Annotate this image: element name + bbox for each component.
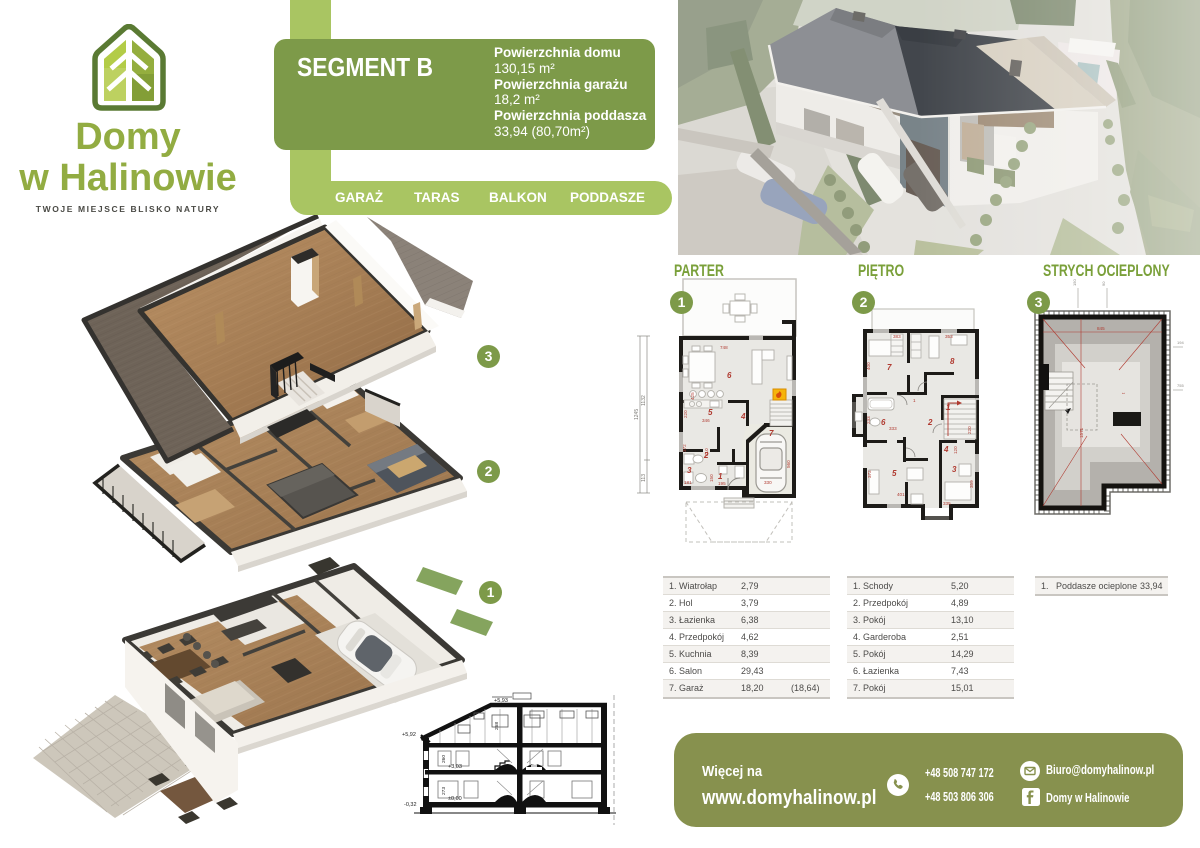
svg-text:1245: 1245 — [634, 409, 640, 420]
svg-text:260: 260 — [441, 755, 447, 763]
svg-text:748: 748 — [720, 345, 728, 350]
svg-text:330: 330 — [764, 480, 772, 485]
svg-text:150: 150 — [1072, 279, 1077, 286]
svg-text:150: 150 — [709, 474, 714, 482]
svg-text:1571: 1571 — [1079, 427, 1084, 438]
svg-text:273: 273 — [441, 787, 447, 795]
svg-text:346: 346 — [702, 418, 710, 423]
svg-text:+3,03: +3,03 — [448, 764, 462, 770]
svg-text:755: 755 — [1177, 383, 1184, 388]
svg-text:7: 7 — [769, 429, 774, 438]
svg-text:4: 4 — [740, 412, 746, 421]
svg-text:383: 383 — [893, 334, 901, 339]
svg-text:210: 210 — [704, 448, 709, 456]
svg-text:1: 1 — [946, 403, 951, 412]
svg-text:3: 3 — [952, 465, 957, 474]
svg-text:268: 268 — [494, 722, 500, 730]
svg-text:400: 400 — [866, 362, 871, 370]
svg-text:7: 7 — [887, 363, 892, 372]
svg-text:5: 5 — [708, 408, 713, 417]
svg-text:333: 333 — [889, 426, 897, 431]
svg-text:6: 6 — [727, 371, 732, 380]
svg-text:845: 845 — [1097, 326, 1105, 331]
svg-text:220: 220 — [967, 426, 972, 434]
svg-text:194: 194 — [1177, 340, 1184, 345]
svg-text:372: 372 — [867, 470, 872, 478]
svg-text:3: 3 — [687, 466, 692, 475]
svg-text:6: 6 — [881, 418, 886, 427]
svg-text:+5,93: +5,93 — [494, 698, 508, 704]
svg-text:+5,92: +5,92 — [402, 732, 416, 738]
svg-text:113: 113 — [641, 474, 647, 482]
svg-text:335: 335 — [943, 501, 951, 506]
svg-text:401: 401 — [897, 492, 905, 497]
svg-text:1: 1 — [913, 398, 916, 403]
svg-text:-0,32: -0,32 — [404, 802, 417, 808]
svg-text:1: 1 — [718, 472, 723, 481]
svg-text:359: 359 — [969, 480, 974, 488]
svg-text:1132: 1132 — [641, 395, 647, 406]
svg-text:8: 8 — [950, 357, 955, 366]
svg-text:120: 120 — [953, 446, 958, 454]
svg-text:5: 5 — [892, 469, 897, 478]
svg-text:2: 2 — [927, 418, 933, 427]
svg-text:90: 90 — [1101, 281, 1106, 286]
svg-text:372: 372 — [682, 444, 687, 452]
svg-text:425: 425 — [690, 392, 695, 400]
svg-text:220: 220 — [683, 410, 688, 418]
svg-text:353: 353 — [945, 334, 953, 339]
svg-text:233: 233 — [866, 416, 871, 424]
svg-text:560: 560 — [786, 460, 791, 468]
svg-text:181: 181 — [684, 480, 692, 485]
svg-text:4: 4 — [943, 445, 949, 454]
svg-text:195: 195 — [718, 481, 726, 486]
svg-text:±0,00: ±0,00 — [448, 796, 462, 802]
